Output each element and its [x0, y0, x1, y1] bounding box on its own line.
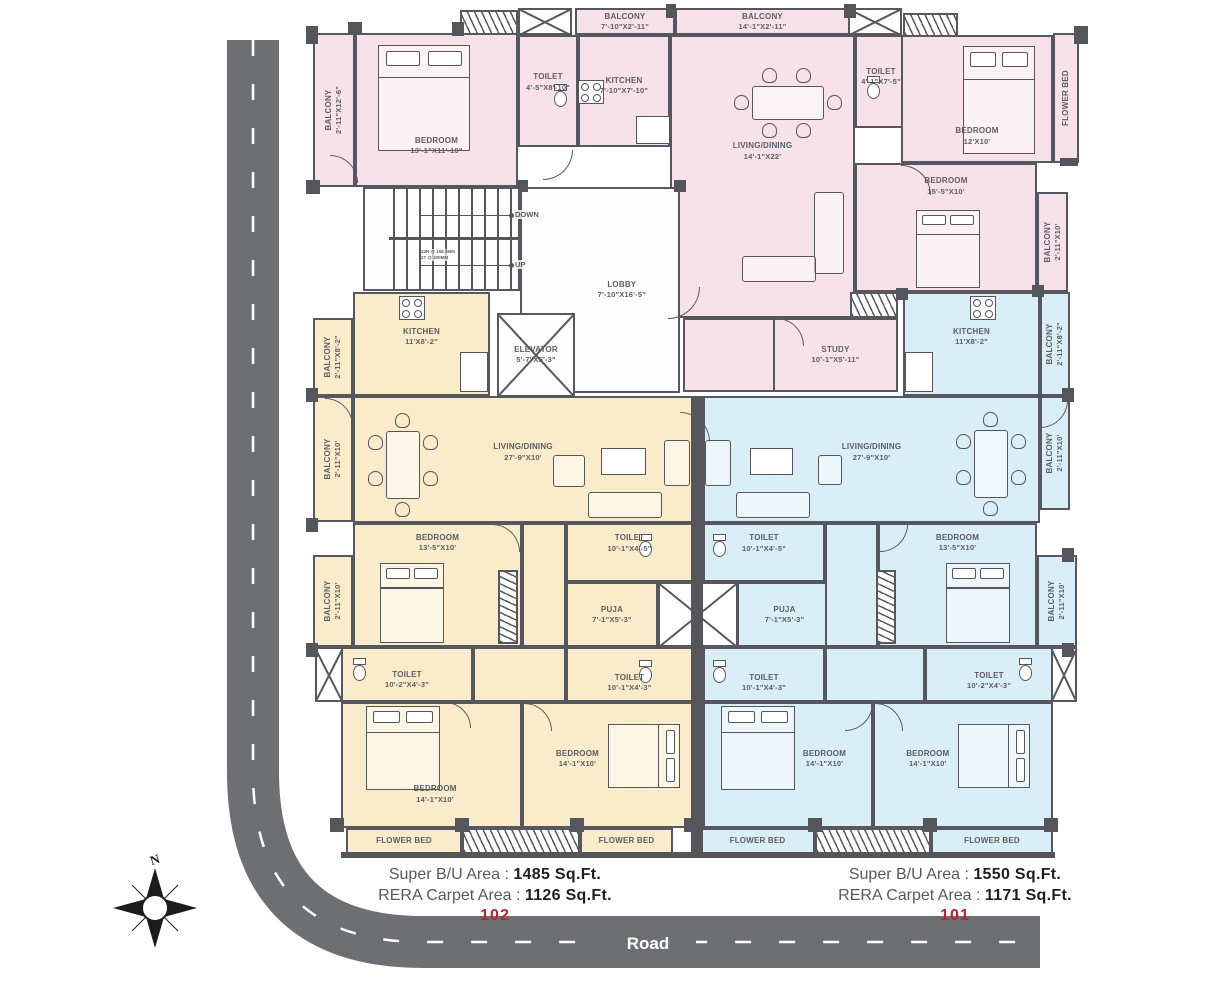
wall-pillar — [306, 643, 318, 657]
wall-pillar — [306, 388, 318, 402]
toilet-fixture — [1018, 658, 1033, 682]
sofa — [588, 492, 662, 518]
room-name: BALCONY — [1042, 222, 1052, 263]
hatch-strip — [903, 13, 958, 37]
stair-down-arrow — [421, 215, 511, 216]
wall-pillar — [348, 22, 362, 34]
hatch-strip — [460, 10, 518, 35]
floor-plan-sheet: Road N DOWN UP 22R @ 158.3MM 2T @ 300MM … — [0, 0, 1221, 986]
room-area — [522, 523, 566, 647]
unit-102-area-summary: Super B/U Area : 1485 Sq.Ft. RERA Carpet… — [330, 864, 660, 925]
room-name: BALCONY — [601, 11, 649, 21]
bed — [608, 724, 680, 788]
room-balcony: BALCONY2'-11"X8'-2" — [1040, 292, 1070, 396]
room-dimensions: 10'-1"X4'-3" — [742, 683, 786, 693]
room-name: BEDROOM — [803, 749, 846, 759]
hatch-strip — [876, 570, 896, 644]
room-puja: PUJA7'-1"X5'-3" — [737, 582, 832, 647]
wall-pillar — [684, 818, 702, 832]
room-name: TOILET — [967, 671, 1011, 681]
room-elevator: ELEVATOR5'-7"X5'-3" — [497, 313, 575, 397]
room-name: TOILET — [385, 670, 429, 680]
toilet-fixture — [553, 84, 568, 108]
wall-pillar — [306, 518, 318, 532]
sofa — [705, 440, 731, 486]
room-name: BEDROOM — [416, 533, 459, 543]
room-name: BALCONY — [1045, 433, 1055, 474]
rera-area-line: RERA Carpet Area : 1126 Sq.Ft. — [330, 885, 660, 906]
room-toilet: TOILET10'-1"X4'-3" — [566, 647, 693, 702]
stair-note: 22R @ 158.3MM 2T @ 300MM — [421, 249, 455, 261]
room-name: PUJA — [765, 604, 805, 614]
room-puja: PUJA7'-1"X5'-3" — [566, 582, 658, 647]
room-dimensions: 10'-1"X4'-5" — [742, 543, 786, 553]
room-dimensions: 2'-11"X10' — [1057, 581, 1067, 622]
room-dimensions: 27'-9"X10' — [842, 452, 902, 462]
sofa — [742, 256, 816, 282]
room-flower-bed: FLOWER BED — [1053, 33, 1079, 163]
room-name: KITCHEN — [600, 76, 648, 86]
shaft — [315, 647, 343, 702]
toilet-fixture — [638, 534, 653, 558]
room-dimensions: 10'-2"X4'-3" — [385, 680, 429, 690]
room-toilet: TOILET10'-1"X4'-5" — [566, 523, 693, 582]
room-balcony: BALCONY2'-11"X10' — [1037, 192, 1068, 292]
room-dimensions: 2'-11"X8'-2" — [333, 335, 343, 379]
compass: N — [108, 846, 203, 966]
room-toilet: TOILET4'-5"X8'-10" — [518, 35, 578, 147]
room-name: STUDY — [812, 345, 860, 355]
room-dimensions: 10'-1"X4'-3" — [608, 683, 652, 693]
wall-pillar — [691, 396, 703, 854]
room-name: LIVING/DINING — [733, 141, 793, 151]
room-dimensions: 14'-1"X10' — [906, 759, 949, 769]
unit-number-102: 102 — [330, 907, 660, 925]
room-flower-bed: FLOWER BED — [700, 828, 815, 854]
building-plan: DOWN UP 22R @ 158.3MM 2T @ 300MM BALCONY… — [0, 0, 1221, 986]
room-dimensions: 2'-11"X8'-2" — [1055, 322, 1065, 366]
room-name: LIVING/DINING — [493, 442, 553, 452]
room-dimensions: 7'-1"X5'-3" — [592, 615, 632, 625]
room-dimensions: 10'-1"X5'-11" — [812, 355, 860, 365]
hatch-strip — [850, 292, 898, 318]
wall-pillar — [1044, 818, 1058, 832]
wall-pillar — [666, 4, 676, 18]
wall-pillar — [452, 22, 464, 36]
room-name: KITCHEN — [403, 327, 440, 337]
furniture-table — [636, 116, 670, 144]
room-name: BEDROOM — [936, 533, 979, 543]
room-name: FLOWER BED — [730, 836, 786, 846]
room-flower-bed: FLOWER BED — [580, 828, 673, 854]
sofa — [814, 192, 844, 274]
furniture-table — [460, 352, 488, 392]
room-balcony: BALCONY14'-1"X2'-11" — [675, 8, 850, 35]
room-dimensions: 13'-5"X10' — [416, 543, 459, 553]
room-name: BEDROOM — [906, 749, 949, 759]
shaft — [518, 8, 572, 35]
sofa — [553, 455, 585, 487]
wall-pillar — [896, 288, 908, 300]
stove — [399, 296, 425, 320]
room-name: PUJA — [592, 604, 632, 614]
staircase: DOWN UP 22R @ 158.3MM 2T @ 300MM — [363, 187, 520, 291]
furniture-table — [750, 448, 793, 475]
room-name: BALCONY — [324, 86, 334, 134]
toilet-fixture — [866, 76, 881, 100]
bed — [916, 210, 980, 288]
room-name: TOILET — [742, 533, 786, 543]
wall-pillar — [341, 852, 1055, 858]
room-name: BALCONY — [1045, 322, 1055, 366]
hatch-strip — [462, 828, 580, 854]
wall-pillar — [1032, 285, 1044, 297]
room-dimensions: 11'X8'-2" — [403, 337, 440, 347]
dining-set — [368, 413, 438, 517]
bed — [946, 563, 1010, 643]
rera-area-line: RERA Carpet Area : 1171 Sq.Ft. — [790, 885, 1120, 906]
bed — [721, 706, 795, 790]
room-area — [683, 318, 775, 392]
room-dimensions: 14'-1"X22' — [733, 152, 793, 162]
stove — [970, 296, 996, 320]
room-dimensions: 2'-11"X10' — [333, 439, 343, 480]
toilet-fixture — [352, 658, 367, 682]
sofa — [664, 440, 690, 486]
room-dimensions: 13'-5"X10' — [936, 543, 979, 553]
bed — [958, 724, 1030, 788]
stove — [578, 80, 604, 104]
sofa — [736, 492, 810, 518]
toilet-fixture — [712, 660, 727, 684]
bed — [380, 563, 444, 643]
unit-101-area-summary: Super B/U Area : 1550 Sq.Ft. RERA Carpet… — [790, 864, 1120, 925]
room-name: LIVING/DINING — [842, 442, 902, 452]
super-area-line: Super B/U Area : 1485 Sq.Ft. — [330, 864, 660, 885]
room-name: KITCHEN — [953, 327, 990, 337]
wall-pillar — [455, 818, 469, 832]
room-area — [825, 647, 925, 702]
unit-number-101: 101 — [790, 907, 1120, 925]
room-dimensions: 2'-11"X10' — [1053, 222, 1063, 263]
room-name: FLOWER BED — [599, 836, 655, 846]
room-toilet: TOILET4'-1"X7'-5" — [855, 35, 907, 128]
room-area — [825, 523, 878, 647]
wall-pillar — [1062, 548, 1074, 562]
super-area-line: Super B/U Area : 1550 Sq.Ft. — [790, 864, 1120, 885]
room-dimensions: 7'-10"X16'-5" — [598, 290, 646, 300]
room-dimensions: 2'-11"X10' — [333, 581, 343, 622]
room-dimensions: 2'-11"X10' — [1055, 433, 1065, 474]
room-dimensions: 2'-11"X12'-6" — [334, 86, 344, 134]
room-name: BEDROOM — [924, 176, 967, 186]
wall-pillar — [570, 818, 584, 832]
stair-down-label: DOWN — [514, 210, 540, 219]
room-balcony: BALCONY2'-11"X10' — [1037, 555, 1077, 647]
room-name: FLOWER BED — [376, 836, 432, 846]
room-dimensions: 14'-1"X10' — [803, 759, 846, 769]
bed — [378, 45, 470, 151]
wall-pillar — [844, 4, 856, 18]
room-name: TOILET — [742, 673, 786, 683]
room-toilet: TOILET10'-2"X4'-3" — [925, 647, 1053, 702]
room-name: FLOWER BED — [964, 836, 1020, 846]
toilet-fixture — [638, 660, 653, 684]
room-name: FLOWER BED — [1061, 70, 1071, 126]
stair-up-label: UP — [514, 260, 526, 269]
furniture-table — [601, 448, 646, 475]
room-balcony: BALCONY2'-11"X10' — [313, 555, 353, 647]
room-dimensions: 14'-1"X10' — [556, 759, 599, 769]
wall-pillar — [808, 818, 822, 832]
room-dimensions: 7'-10"X2'-11" — [601, 22, 649, 32]
room-flower-bed: FLOWER BED — [346, 828, 462, 854]
wall-pillar — [1060, 158, 1078, 166]
room-dimensions: 14'-1"X2'-11" — [739, 22, 787, 32]
furniture-table — [905, 352, 933, 392]
room-name: BEDROOM — [556, 749, 599, 759]
wall-pillar — [306, 26, 318, 44]
wall-pillar — [674, 180, 686, 192]
compass-north-label: N — [148, 851, 162, 868]
room-dimensions: 27'-9"X10' — [493, 452, 553, 462]
room-name: TOILET — [526, 72, 570, 82]
room-name: BALCONY — [1047, 581, 1057, 622]
room-name: BALCONY — [739, 11, 787, 21]
stair-up-arrow — [421, 265, 511, 266]
bed — [366, 706, 440, 790]
room-name: BALCONY — [323, 581, 333, 622]
sofa — [818, 455, 842, 485]
hatch-strip — [498, 570, 518, 644]
dining-set — [734, 68, 842, 138]
wall-pillar — [1062, 643, 1074, 657]
room-area — [473, 647, 566, 702]
room-name: LOBBY — [598, 280, 646, 290]
bed — [963, 46, 1035, 154]
room-balcony: BALCONY7'-10"X2'-11" — [575, 8, 675, 35]
room-dimensions: 11'X8'-2" — [953, 337, 990, 347]
room-name: BALCONY — [323, 335, 333, 379]
room-name: BALCONY — [323, 439, 333, 480]
wall-pillar — [1074, 26, 1088, 44]
room-flower-bed: FLOWER BED — [931, 828, 1053, 854]
wall-pillar — [330, 818, 344, 832]
room-balcony: BALCONY2'-11"X8'-2" — [313, 318, 353, 396]
toilet-fixture — [712, 534, 727, 558]
dining-set — [956, 412, 1026, 516]
room-dimensions: 7'-1"X5'-3" — [765, 615, 805, 625]
wall-pillar — [306, 180, 320, 194]
wall-pillar — [923, 818, 937, 832]
room-dimensions: 7'-10"X7'-10" — [600, 86, 648, 96]
room-dimensions: 14'-1"X10' — [413, 795, 456, 805]
room-dimensions: 10'-2"X4'-3" — [967, 681, 1011, 691]
door-arc — [543, 150, 573, 180]
shaft — [848, 8, 902, 35]
hatch-strip — [815, 828, 931, 854]
